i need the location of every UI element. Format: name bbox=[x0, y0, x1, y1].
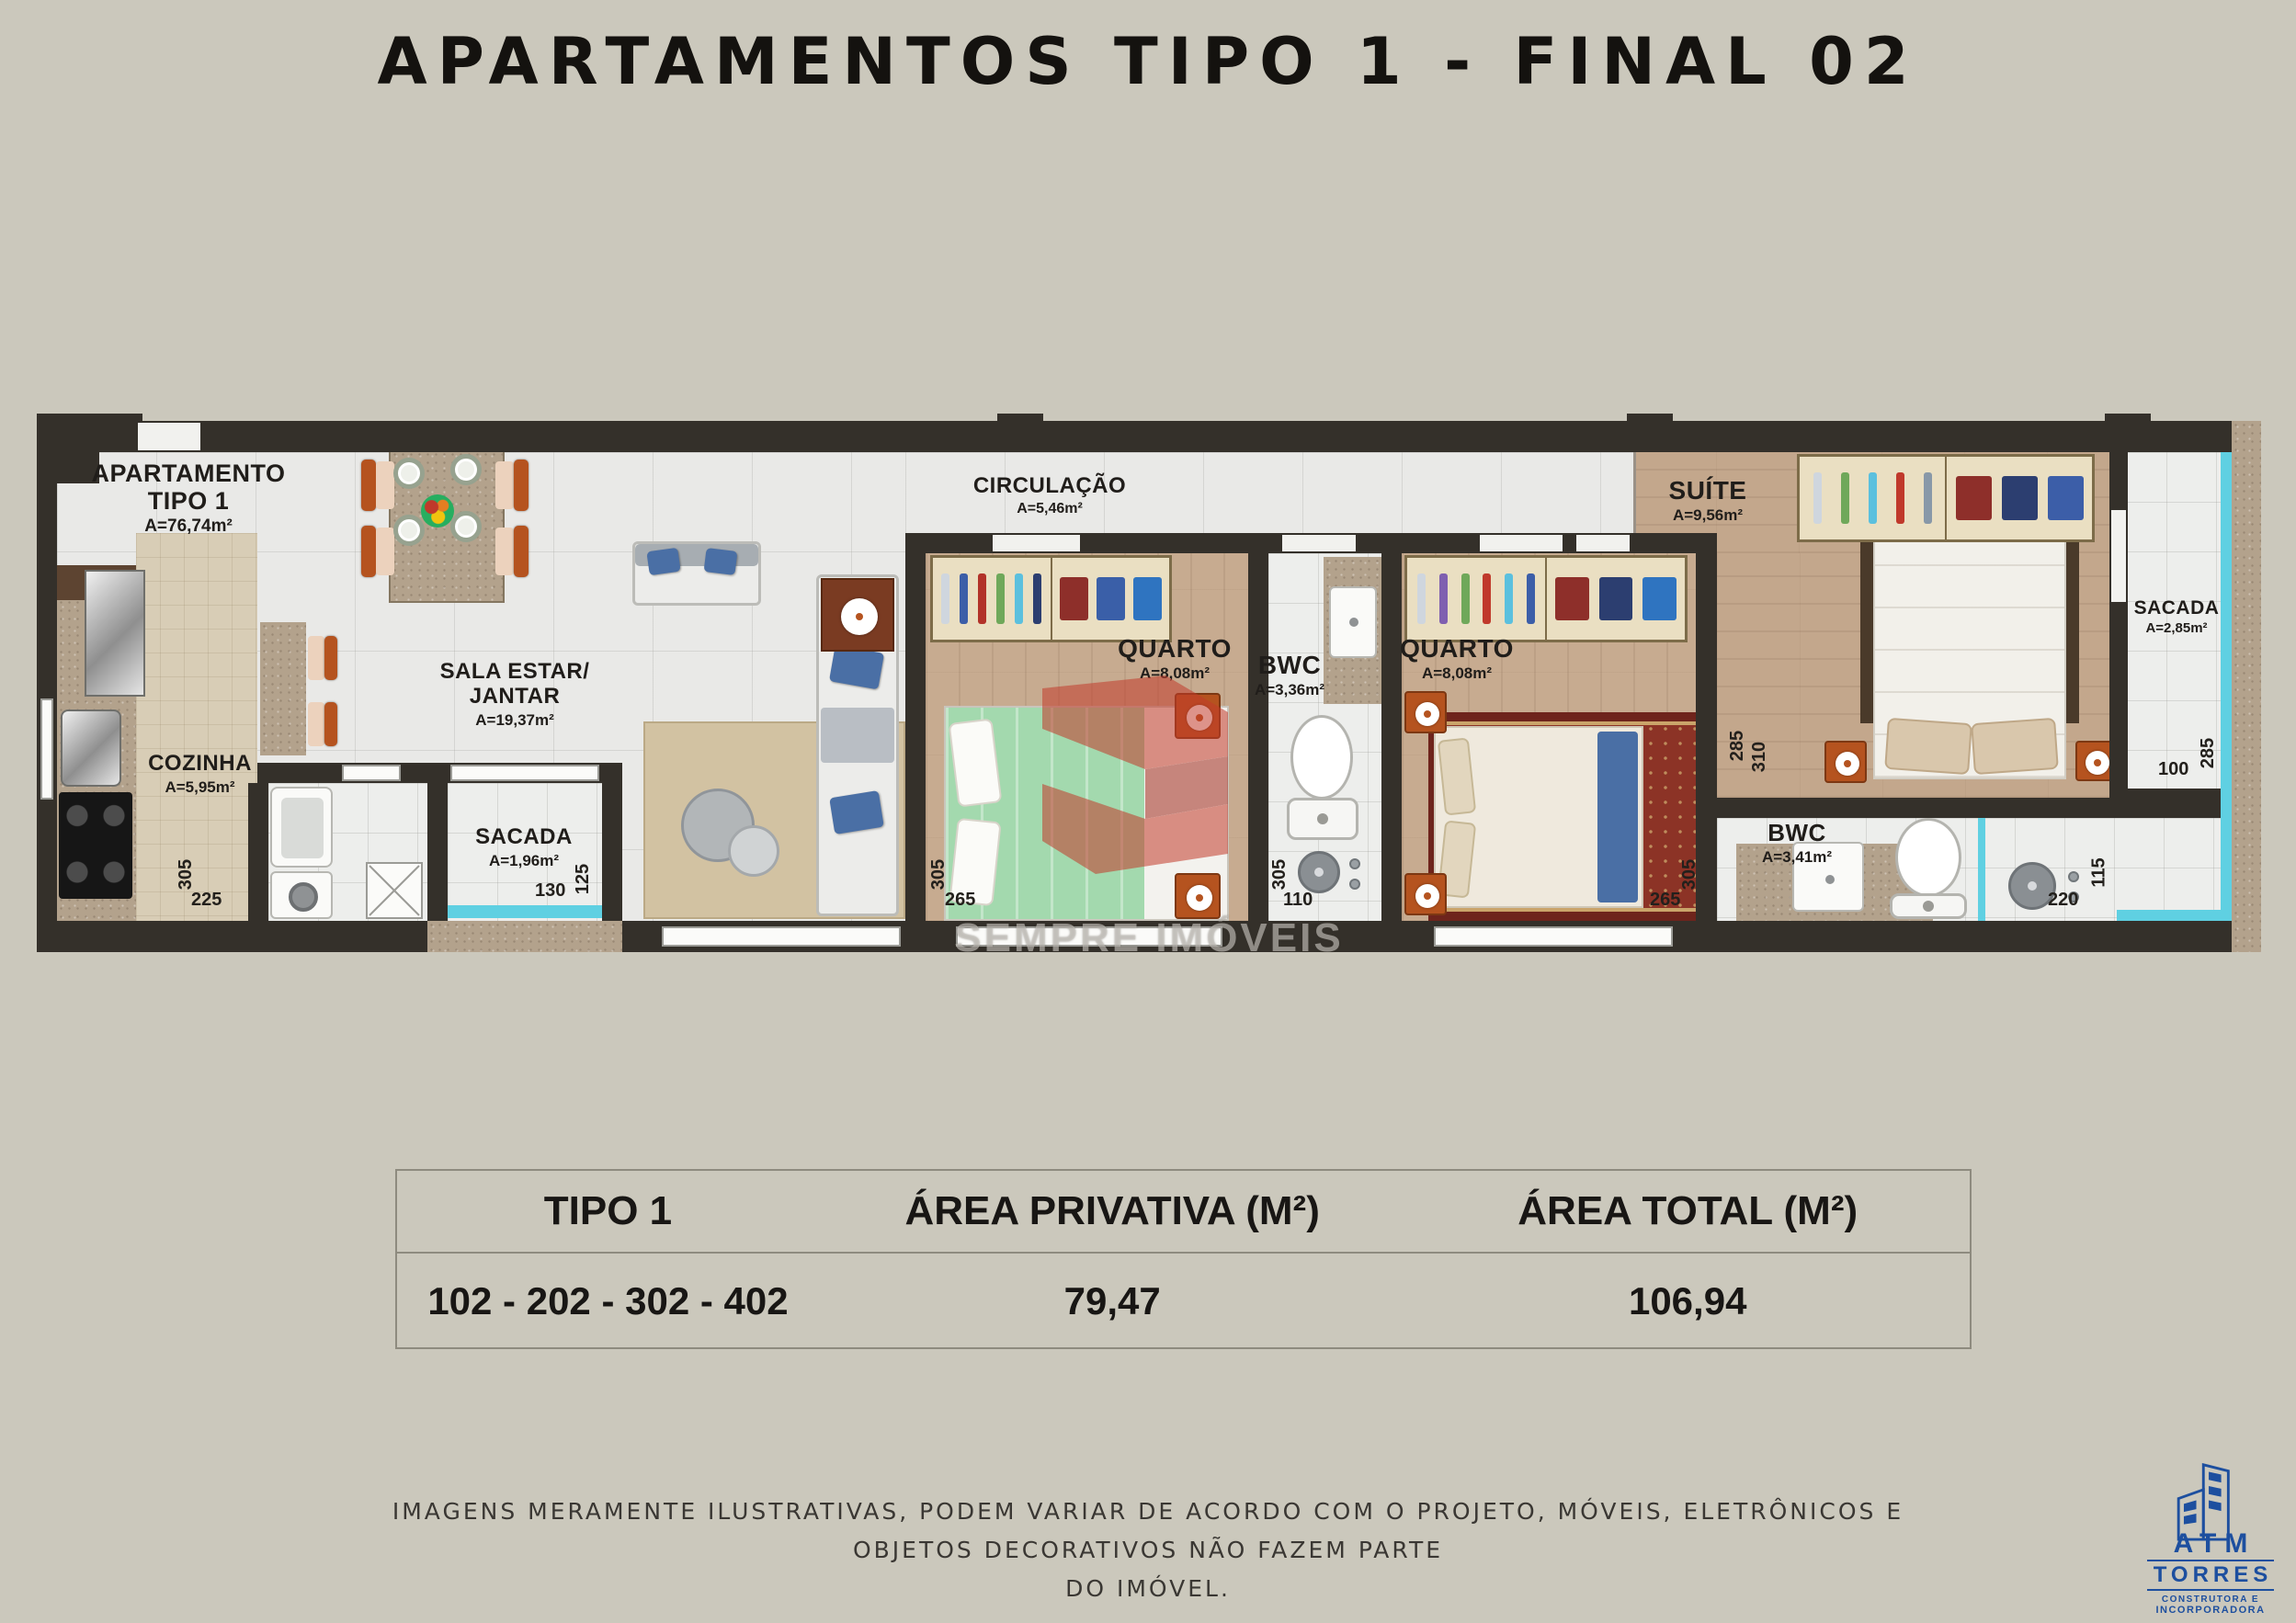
cell-units: 102 - 202 - 302 - 402 bbox=[397, 1254, 819, 1349]
door-gap-bathroom1 bbox=[1282, 535, 1356, 551]
watermark-ribbon-icon bbox=[1037, 674, 1233, 888]
cooktop bbox=[59, 792, 132, 899]
clothes-item bbox=[1483, 573, 1491, 624]
wall-bathroom1-bedroom2 bbox=[1381, 553, 1402, 921]
hanging-clothes bbox=[933, 558, 1051, 640]
clothes-item bbox=[1813, 472, 1822, 524]
watermark-text: SEMPRE IMÓVEIS bbox=[947, 915, 1351, 961]
pillow bbox=[1971, 718, 2059, 775]
clothes-item bbox=[1461, 573, 1470, 624]
balcony-small-slider bbox=[450, 765, 599, 781]
wall-pier bbox=[2105, 414, 2151, 452]
folded-clothes bbox=[1051, 558, 1170, 640]
clothes-item bbox=[941, 573, 949, 624]
wall-left bbox=[37, 421, 57, 952]
wardrobe-bedroom1 bbox=[930, 555, 1172, 642]
washing-machine bbox=[270, 871, 333, 919]
clothes-item bbox=[1133, 577, 1162, 621]
nightstand-lamp bbox=[1415, 884, 1439, 908]
room-area: A=9,56m² bbox=[1607, 506, 1809, 524]
clothes-item bbox=[960, 573, 968, 624]
clothes-item bbox=[978, 573, 986, 624]
sofa-top bbox=[632, 541, 761, 606]
blue-pillow bbox=[646, 548, 680, 575]
folded-clothes bbox=[1945, 457, 2092, 539]
fruit-bowl bbox=[421, 494, 454, 528]
spec-table: TIPO 1 ÁREA PRIVATIVA (M²) ÁREA TOTAL (M… bbox=[395, 1169, 1972, 1349]
bed-suite-rail bbox=[1860, 519, 1873, 723]
door-gap-bedroom2 bbox=[1480, 535, 1563, 551]
apartment-name: APARTAMENTO bbox=[78, 460, 299, 487]
room-name: SUÍTE bbox=[1607, 476, 1809, 505]
wardrobe-bedroom2 bbox=[1404, 555, 1688, 642]
washer-door bbox=[289, 882, 318, 912]
bed-suite-rail bbox=[2066, 519, 2079, 723]
floor-plan: APARTAMENTO TIPO 1 A=76,74m² COZINHA A=5… bbox=[0, 0, 2296, 1623]
shower-glass-divider bbox=[1978, 818, 1985, 921]
dining-chair bbox=[514, 460, 529, 511]
bed-suite bbox=[1873, 515, 2066, 779]
room-label-sacada2: SACADA A=2,85m² bbox=[2117, 597, 2236, 636]
clothes-item bbox=[1015, 573, 1023, 624]
door-gap-suite bbox=[1576, 535, 1630, 551]
dining-chair-pad bbox=[376, 461, 394, 509]
blue-throw bbox=[1597, 732, 1638, 902]
clothes-item bbox=[1956, 476, 1992, 520]
wall-laundry-left bbox=[248, 783, 268, 921]
nightstand bbox=[1824, 741, 1867, 783]
dim-suite-depth: 285 bbox=[1727, 731, 1748, 761]
folded-clothes bbox=[1545, 558, 1685, 640]
wall-pier bbox=[997, 414, 1043, 452]
kitchen-island bbox=[260, 622, 306, 755]
sink-drain bbox=[1349, 618, 1358, 627]
side-table bbox=[821, 578, 894, 652]
room-area: A=3,41m² bbox=[1696, 848, 1898, 866]
clothes-item bbox=[1439, 573, 1448, 624]
dining-chair-pad bbox=[495, 528, 514, 575]
blue-pillow bbox=[704, 548, 738, 575]
room-name: SACADA bbox=[441, 825, 607, 850]
room-area: A=5,46m² bbox=[949, 501, 1151, 517]
shower-bathroom1 bbox=[1298, 851, 1340, 893]
sink-drain bbox=[1825, 875, 1835, 884]
nightstand bbox=[1404, 873, 1447, 915]
spec-table-row: 102 - 202 - 302 - 402 79,47 106,94 bbox=[397, 1254, 1970, 1349]
plate bbox=[450, 511, 482, 542]
toilet-tank-bathroom2 bbox=[1890, 893, 1967, 919]
door-gap-balcony-right bbox=[2111, 510, 2126, 602]
room-label-suite: SUÍTE A=9,56m² bbox=[1607, 476, 1809, 524]
wall-bedroom1-left bbox=[905, 553, 926, 921]
logo-line3: CONSTRUTORA E bbox=[2162, 1595, 2259, 1605]
folding-door-lines bbox=[368, 864, 421, 917]
dim-cozinha-width: 225 bbox=[191, 890, 222, 911]
stool bbox=[324, 702, 337, 746]
nightstand-lamp bbox=[1187, 885, 1212, 911]
clothes-item bbox=[1417, 573, 1426, 624]
apartment-type: TIPO 1 bbox=[78, 487, 299, 515]
apartment-label: APARTAMENTO TIPO 1 A=76,74m² bbox=[78, 460, 299, 537]
clothes-item bbox=[1924, 472, 1932, 524]
door-gap-bedroom1 bbox=[993, 535, 1080, 551]
laundry-sink-basin bbox=[281, 798, 324, 858]
balcony-right-glass-bottom bbox=[2117, 910, 2221, 921]
stool bbox=[324, 636, 337, 680]
window-kitchen bbox=[40, 698, 53, 800]
dim-sacada-width: 130 bbox=[535, 880, 565, 902]
dim-bwc1-width: 110 bbox=[1283, 890, 1313, 911]
toilet-bathroom2 bbox=[1895, 818, 1961, 897]
window-living bbox=[662, 926, 901, 947]
dim-quarto2-depth: 305 bbox=[1679, 859, 1700, 890]
floor-plan-page: APARTAMENTOS TIPO 1 - FINAL 02 bbox=[0, 0, 2296, 1623]
disclaimer-line2: OBJETOS DECORATIVOS NÃO FAZEM PARTE bbox=[0, 1537, 2296, 1563]
spec-table-header: TIPO 1 ÁREA PRIVATIVA (M²) ÁREA TOTAL (M… bbox=[397, 1171, 1970, 1252]
room-label-sacada: SACADA A=1,96m² bbox=[441, 825, 607, 869]
room-name: CIRCULAÇÃO bbox=[949, 474, 1151, 499]
fridge bbox=[85, 570, 145, 697]
wall-bedroom1-bathroom1 bbox=[1248, 553, 1268, 921]
balcony-small-sill bbox=[427, 921, 622, 952]
dim-sacada2-width: 100 bbox=[2158, 759, 2188, 780]
room-name: BWC bbox=[1696, 820, 1898, 846]
gray-throw bbox=[821, 708, 894, 763]
room-name: SACADA bbox=[2117, 597, 2236, 619]
hanging-clothes bbox=[1407, 558, 1545, 640]
nightstand-lamp bbox=[2086, 751, 2109, 775]
window-bedroom2 bbox=[1434, 926, 1673, 947]
clothes-item bbox=[1896, 472, 1904, 524]
clothes-item bbox=[1505, 573, 1513, 624]
balcony-right-glass bbox=[2221, 452, 2232, 921]
dim-bwc2-width: 220 bbox=[2048, 890, 2078, 911]
clothes-item bbox=[1097, 577, 1125, 621]
room-name: BWC bbox=[1234, 651, 1345, 679]
clothes-item bbox=[1060, 577, 1088, 621]
clothes-item bbox=[2048, 476, 2084, 520]
dim-bwc2-depth: 115 bbox=[2089, 857, 2110, 887]
disclaimer-line3: DO IMÓVEL. bbox=[0, 1575, 2296, 1602]
dining-chair bbox=[514, 526, 529, 577]
wall-pier bbox=[1627, 414, 1673, 452]
clothes-item bbox=[1555, 577, 1589, 621]
clothes-item bbox=[1642, 577, 1677, 621]
room-label-quarto2: QUARTO A=8,08m² bbox=[1356, 634, 1558, 682]
balcony-small-glass bbox=[448, 905, 602, 918]
room-area: A=8,08m² bbox=[1356, 664, 1558, 682]
cell-area-total: 106,94 bbox=[1405, 1254, 1970, 1349]
dim-cozinha-depth: 305 bbox=[176, 859, 197, 890]
laundry-door-frame bbox=[342, 765, 401, 781]
dim-sacada-depth: 125 bbox=[573, 864, 594, 894]
dining-chair bbox=[361, 526, 376, 577]
wall-balcony-right-bottom bbox=[2109, 789, 2239, 809]
room-name: SALA ESTAR/ bbox=[404, 660, 625, 685]
kitchen-sink bbox=[61, 709, 121, 787]
header-area-privativa: ÁREA PRIVATIVA (M²) bbox=[819, 1171, 1406, 1252]
laundry-sink bbox=[270, 787, 333, 868]
cell-area-privativa: 79,47 bbox=[819, 1254, 1406, 1349]
header-area-total: ÁREA TOTAL (M²) bbox=[1405, 1171, 1970, 1252]
dining-chair bbox=[361, 460, 376, 511]
clothes-item bbox=[1033, 573, 1041, 624]
shower-tap bbox=[2068, 871, 2079, 882]
table-lamp bbox=[841, 598, 878, 635]
coffee-table-small bbox=[728, 825, 779, 877]
room-area: A=5,95m² bbox=[138, 778, 262, 796]
dim-quarto1-width: 265 bbox=[945, 890, 975, 911]
room-label-circulacao: CIRCULAÇÃO A=5,46m² bbox=[949, 474, 1151, 517]
bed-bedroom2 bbox=[1434, 726, 1643, 908]
logo-line4: INCORPORADORA bbox=[2155, 1605, 2265, 1616]
room-area: A=3,36m² bbox=[1234, 681, 1345, 698]
clothes-item bbox=[996, 573, 1005, 624]
clothes-item bbox=[2002, 476, 2038, 520]
toilet-tank-bathroom1 bbox=[1287, 798, 1358, 840]
plate bbox=[393, 458, 425, 489]
dim-sacada2-depth: 285 bbox=[2198, 738, 2219, 768]
dining-chair-pad bbox=[376, 528, 394, 575]
clothes-item bbox=[1869, 472, 1877, 524]
room-name: QUARTO bbox=[1356, 634, 1558, 663]
room-area: A=2,85m² bbox=[2117, 621, 2236, 637]
stool-pad bbox=[308, 702, 324, 746]
plate bbox=[450, 454, 482, 485]
disclaimer-line1: IMAGENS MERAMENTE ILUSTRATIVAS, PODEM VA… bbox=[0, 1498, 2296, 1525]
room-label-sala: SALA ESTAR/ JANTAR A=19,37m² bbox=[404, 660, 625, 729]
disclaimer: IMAGENS MERAMENTE ILUSTRATIVAS, PODEM VA… bbox=[0, 1498, 2296, 1614]
nightstand-lamp bbox=[1415, 702, 1439, 726]
balcony-right-border bbox=[2232, 421, 2261, 952]
entry-door-gap bbox=[138, 423, 200, 450]
nightstand bbox=[1404, 691, 1447, 733]
folding-door bbox=[366, 862, 423, 919]
room-label-bwc1: BWC A=3,36m² bbox=[1234, 651, 1345, 698]
logo-name: ATM bbox=[2165, 1528, 2256, 1560]
shower-tap bbox=[1349, 879, 1360, 890]
pillow bbox=[1884, 718, 1972, 775]
apartment-area: A=76,74m² bbox=[78, 516, 299, 536]
clothes-item bbox=[1599, 577, 1633, 621]
dim-quarto2-width: 265 bbox=[1650, 890, 1680, 911]
clothes-item bbox=[1527, 573, 1535, 624]
room-name: JANTAR bbox=[404, 685, 625, 709]
room-area: A=19,37m² bbox=[404, 711, 625, 729]
room-label-bwc2: BWC A=3,41m² bbox=[1696, 820, 1898, 866]
dim-bwc1-depth: 305 bbox=[1269, 859, 1290, 890]
room-label-cozinha: COZINHA A=5,95m² bbox=[138, 752, 262, 796]
shower-tap bbox=[1349, 858, 1360, 869]
clothes-item bbox=[1841, 472, 1849, 524]
dim-quarto1-depth: 305 bbox=[928, 859, 949, 890]
pillow bbox=[1438, 737, 1476, 815]
hanging-clothes bbox=[1800, 457, 1945, 539]
wardrobe-suite bbox=[1797, 454, 2095, 542]
company-logo: ATM TORRES CONSTRUTORA E INCORPORADORA bbox=[2142, 1459, 2279, 1616]
plate bbox=[393, 515, 425, 546]
nightstand-lamp bbox=[1836, 752, 1859, 776]
dining-chair-pad bbox=[495, 461, 514, 509]
logo-line2: TORRES bbox=[2147, 1560, 2275, 1591]
stool-pad bbox=[308, 636, 324, 680]
dim-suite-width: 310 bbox=[1749, 742, 1770, 772]
toilet-bathroom1 bbox=[1290, 715, 1353, 800]
blue-pillow bbox=[829, 790, 884, 834]
header-tipo: TIPO 1 bbox=[397, 1171, 819, 1252]
wall-top bbox=[37, 421, 2261, 452]
wall-pier bbox=[37, 414, 142, 452]
room-name: COZINHA bbox=[138, 752, 262, 777]
